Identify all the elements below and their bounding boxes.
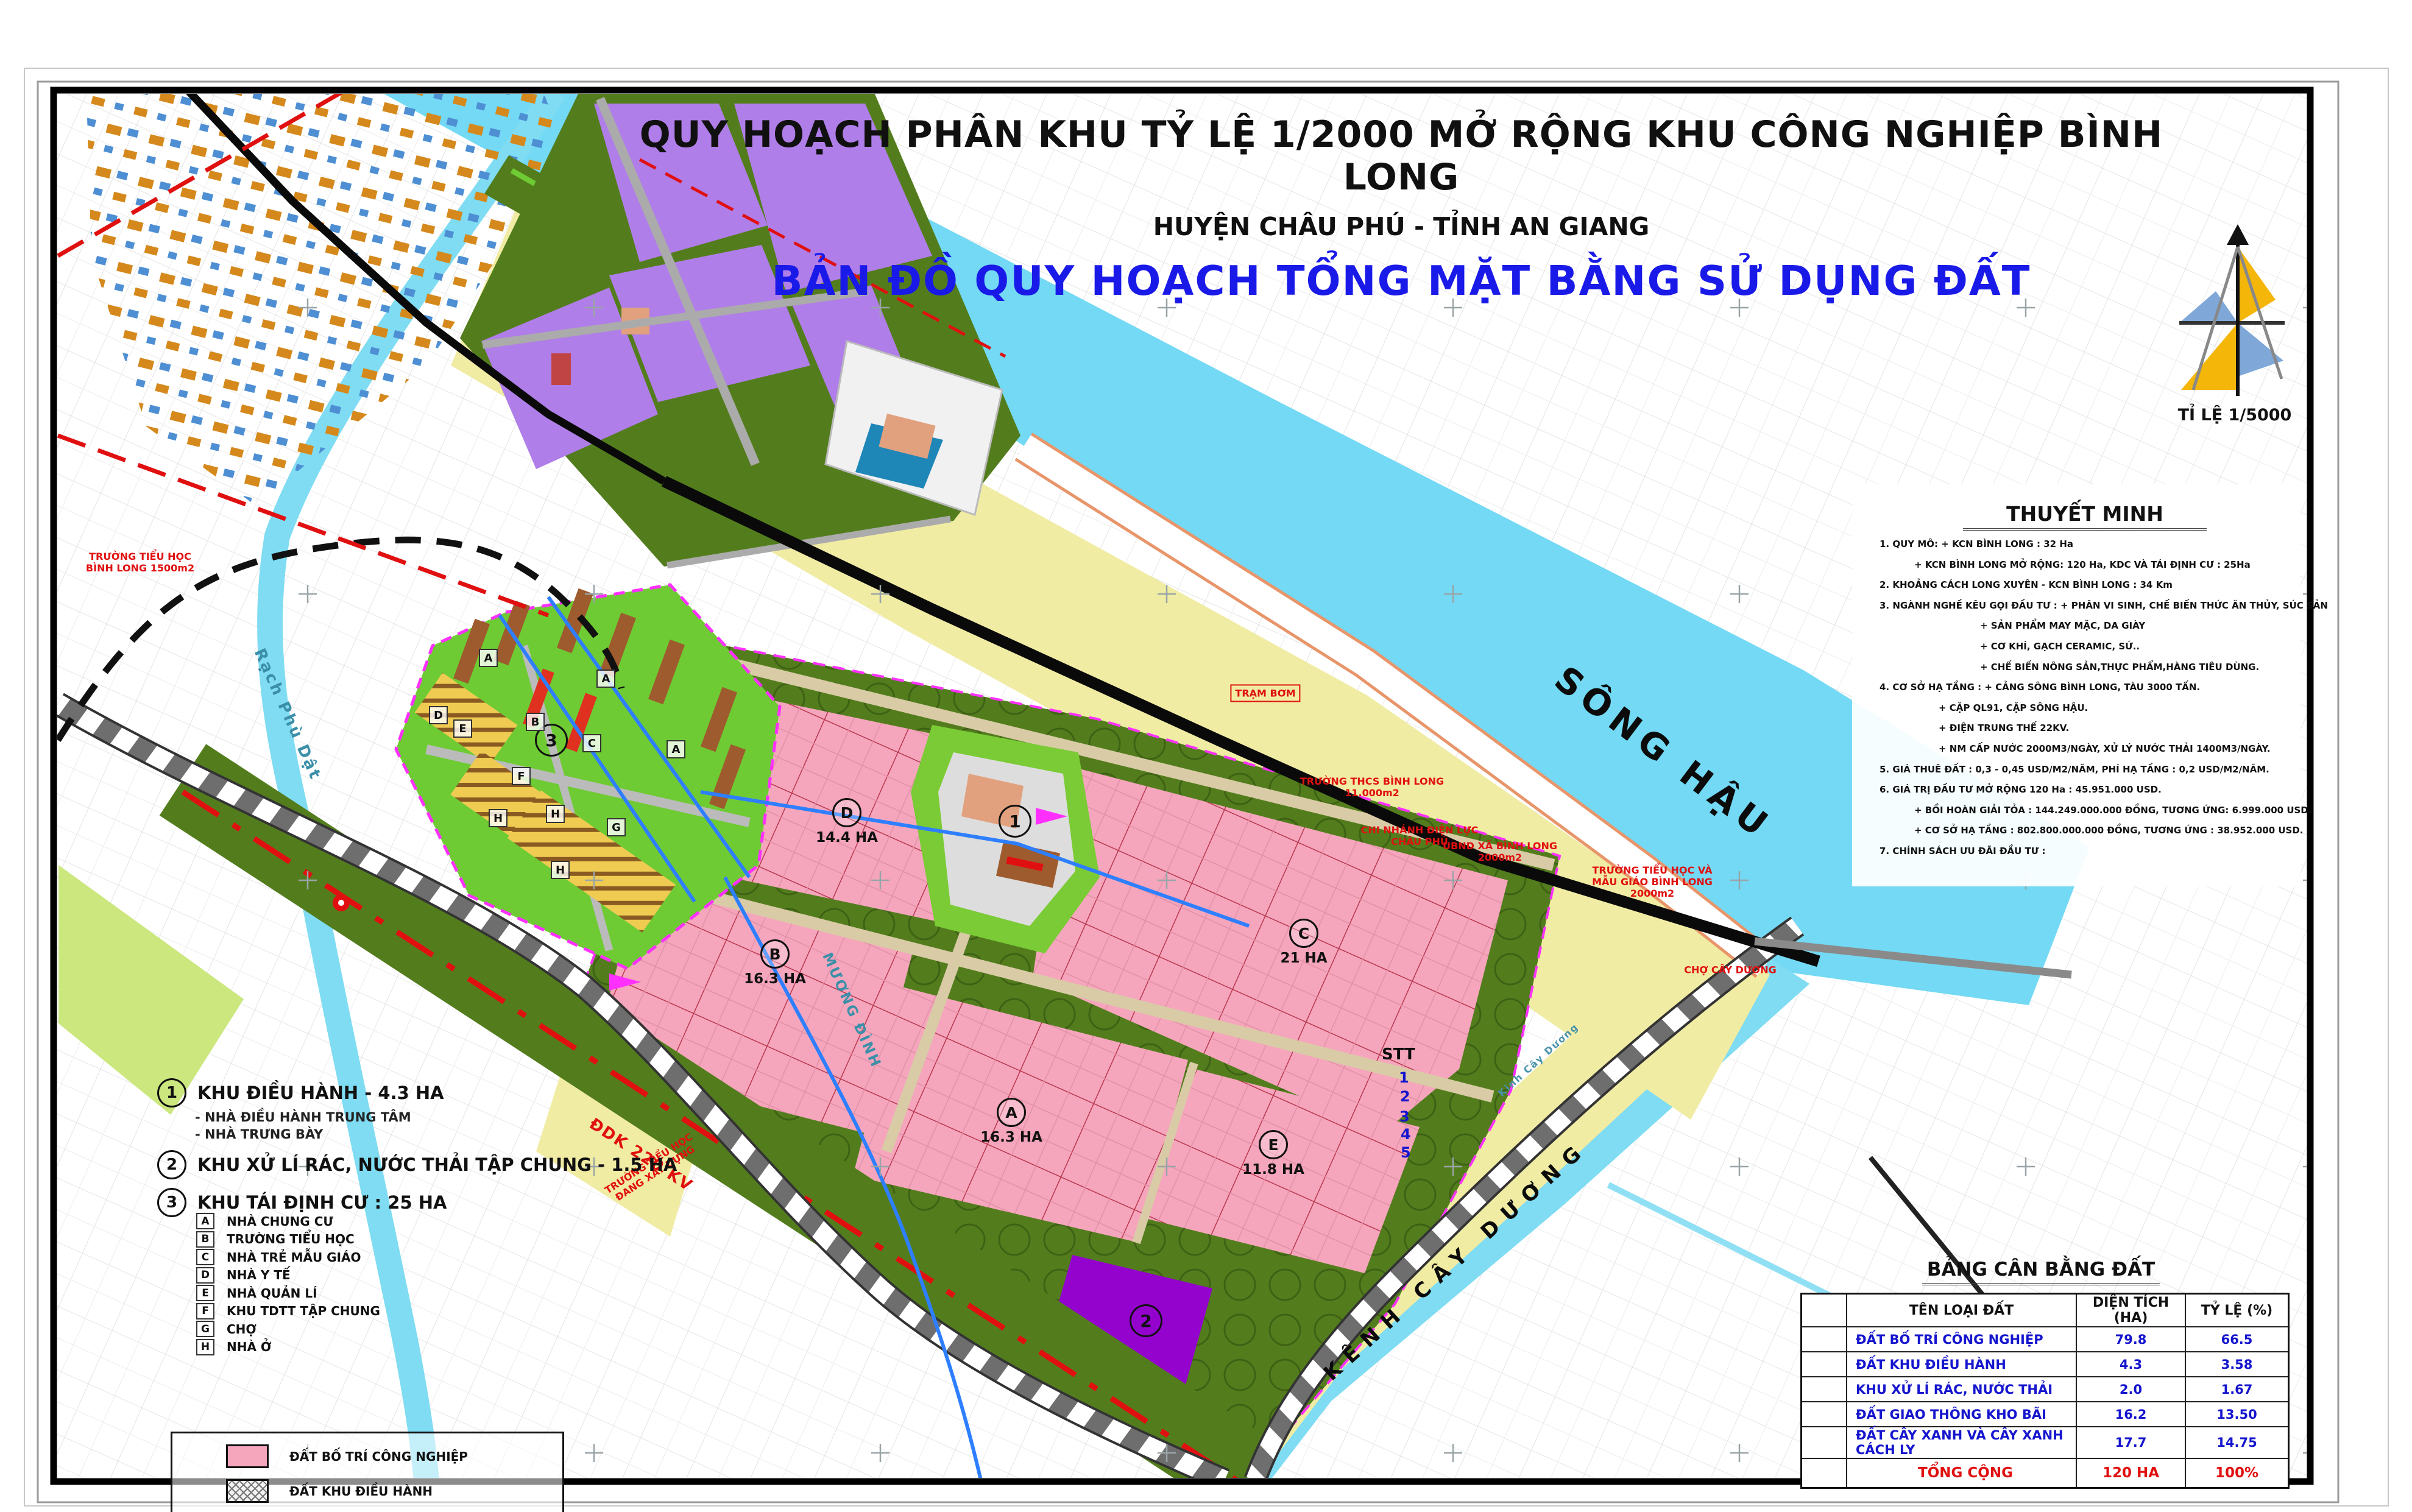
balance-table-body: ĐẤT BỐ TRÍ CÔNG NGHIỆP79.866.5ĐẤT KHU ĐI… bbox=[1802, 1327, 2289, 1458]
header-stt bbox=[1802, 1294, 1847, 1327]
main-title: QUY HOẠCH PHÂN KHU TỶ LỆ 1/2000 MỞ RỘNG … bbox=[579, 113, 2224, 199]
red-map-label: TRẠM BƠM bbox=[1230, 684, 1300, 702]
map-title: BẢN ĐỒ QUY HOẠCH TỔNG MẶT BẰNG SỬ DỤNG Đ… bbox=[579, 257, 2224, 305]
balance-table-title: BẢNG CÂN BẰNG ĐẤT bbox=[1840, 1259, 2242, 1281]
legend-letter-B: BTRƯỜNG TIỂU HỌC bbox=[196, 1231, 380, 1249]
table-row: ĐẤT BỐ TRÍ CÔNG NGHIỆP79.866.5 bbox=[1802, 1327, 2289, 1352]
note-line: 4. CƠ SỞ HẠ TẦNG : + CẢNG SÔNG BÌNH LONG… bbox=[1880, 682, 2200, 693]
header-name: TÊN LOẠI ĐẤT bbox=[1847, 1294, 2076, 1327]
note-line: + CƠ SỞ HẠ TẦNG : 802.800.000.000 ĐỒNG, … bbox=[1914, 825, 2304, 836]
table-total-row: TỔNG CỘNG 120 HA 100% bbox=[1802, 1458, 2289, 1488]
red-map-label: UBND XÃ BÌNH LONG2000m2 bbox=[1443, 840, 1557, 863]
stt-label: STT bbox=[1382, 1045, 1415, 1064]
stt-number: 5 bbox=[1401, 1144, 1411, 1161]
note-line: + CẶP QL91, CẶP SÔNG HẬU. bbox=[1939, 702, 2088, 713]
legend-swatch-pink: ĐẤT BỐ TRÍ CÔNG NGHIỆP bbox=[226, 1444, 562, 1468]
letter-marker-B: B bbox=[526, 713, 545, 731]
letter-marker-A: A bbox=[667, 740, 685, 758]
legend-numbered: 1KHU ĐIỀU HÀNH - 4.3 HA- NHÀ ĐIỀU HÀNH T… bbox=[157, 1078, 706, 1226]
legend-swatch-box: ĐẤT BỐ TRÍ CÔNG NGHIỆPĐẤT KHU ĐIỀU HÀNH bbox=[171, 1432, 564, 1512]
note-line: 5. GIÁ THUÊ ĐẤT : 0,3 - 0,45 USD/M2/NĂM,… bbox=[1880, 764, 2269, 775]
title-block: QUY HOẠCH PHÂN KHU TỶ LỆ 1/2000 MỞ RỘNG … bbox=[579, 113, 2224, 305]
legend-swatch-hatch: ĐẤT KHU ĐIỀU HÀNH bbox=[226, 1479, 562, 1503]
legend-letters: ANHÀ CHUNG CƯBTRƯỜNG TIỂU HỌCCNHÀ TRẺ MẪ… bbox=[196, 1212, 380, 1356]
letter-marker-F: F bbox=[512, 767, 531, 785]
stt-number: 4 bbox=[1401, 1126, 1411, 1143]
total-name: TỔNG CỘNG bbox=[1847, 1458, 2076, 1488]
notes-title: THUYẾT MINH bbox=[1963, 502, 2207, 531]
note-line: 6. GIÁ TRỊ ĐẦU TƯ MỞ RỘNG 120 Ha : 45.95… bbox=[1880, 784, 2162, 795]
letter-marker-A: A bbox=[596, 669, 615, 688]
zone-label-E: E11.8 HA bbox=[1231, 1130, 1316, 1178]
note-line: 7. CHÍNH SÁCH ƯU ĐÃI ĐẦU TƯ : bbox=[1880, 846, 2046, 857]
stt-number: 2 bbox=[1400, 1088, 1410, 1105]
circle-marker-1: 1 bbox=[999, 805, 1031, 838]
table-row: ĐẤT CÂY XANH VÀ CÂY XANH CÁCH LY17.714.7… bbox=[1802, 1427, 2289, 1458]
note-line: 2. KHOẢNG CÁCH LONG XUYÊN - KCN BÌNH LON… bbox=[1880, 579, 2173, 590]
legend-letter-H: HNHÀ Ở bbox=[196, 1338, 380, 1357]
zone-label-C: C21 HA bbox=[1261, 919, 1346, 966]
letter-marker-H: H bbox=[546, 805, 565, 823]
legend-item-1: 1KHU ĐIỀU HÀNH - 4.3 HA- NHÀ ĐIỀU HÀNH T… bbox=[157, 1078, 706, 1142]
red-map-label: TRƯỜNG TIỂU HỌC VÀMẪU GIÁO BÌNH LONG2000… bbox=[1592, 864, 1713, 900]
header-area: DIỆN TÍCH (HA) bbox=[2076, 1294, 2185, 1327]
note-line: + NM CẤP NƯỚC 2000M3/NGÀY, XỬ LÝ NƯỚC TH… bbox=[1939, 743, 2271, 754]
legend-letter-A: ANHÀ CHUNG CƯ bbox=[196, 1212, 380, 1231]
scale-label: TỈ LỆ 1/5000 bbox=[2162, 406, 2308, 425]
legend-letter-D: DNHÀ Y TẾ bbox=[196, 1266, 380, 1285]
letter-marker-D: D bbox=[429, 706, 448, 724]
legend-letter-F: FKHU TDTT TẬP CHUNG bbox=[196, 1302, 380, 1321]
note-line: 1. QUY MÔ: + KCN BÌNH LONG : 32 Ha bbox=[1880, 539, 2073, 549]
balance-table: TÊN LOẠI ĐẤT DIỆN TÍCH (HA) TỶ LỆ (%) ĐẤ… bbox=[1800, 1293, 2290, 1489]
legend-item-2: 2KHU XỬ LÍ RÁC, NƯỚC THẢI TẬP CHUNG - 1.… bbox=[157, 1150, 706, 1179]
note-line: + KCN BÌNH LONG MỞ RỘNG: 120 Ha, KDC VÀ … bbox=[1914, 559, 2251, 570]
note-line: + BỒI HOÀN GIẢI TỎA : 144.249.000.000 ĐỒ… bbox=[1914, 805, 2311, 816]
note-line: + SẢN PHẨM MAY MẶC, DA GIÀY bbox=[1980, 620, 2145, 631]
table-row: ĐẤT GIAO THÔNG KHO BÃI16.213.50 bbox=[1802, 1402, 2289, 1427]
note-line: 3. NGÀNH NGHỀ KÊU GỌI ĐẦU TƯ : + PHÂN VI… bbox=[1880, 600, 2328, 611]
note-line: + CƠ KHÍ, GẠCH CERAMIC, SỨ.. bbox=[1980, 641, 2140, 652]
letter-marker-H: H bbox=[551, 861, 570, 879]
table-row: ĐẤT KHU ĐIỀU HÀNH4.33.58 bbox=[1802, 1352, 2289, 1377]
stt-number: 3 bbox=[1399, 1108, 1410, 1125]
letter-marker-A: A bbox=[479, 649, 498, 667]
total-area: 120 HA bbox=[2076, 1458, 2185, 1488]
sub-title: HUYỆN CHÂU PHÚ - TỈNH AN GIANG bbox=[579, 212, 2224, 241]
table-row: KHU XỬ LÍ RÁC, NƯỚC THẢI2.01.67 bbox=[1802, 1377, 2289, 1402]
red-map-label: TRƯỜNG THCS BÌNH LONG11.000m2 bbox=[1300, 775, 1444, 799]
red-map-label: CHỢ CÂY DƯƠNG bbox=[1684, 964, 1777, 975]
zone-label-D: D14.4 HA bbox=[804, 798, 889, 846]
letter-marker-H: H bbox=[489, 809, 508, 827]
legend-letter-G: GCHỢ bbox=[196, 1320, 380, 1338]
note-line: + CHẾ BIẾN NÔNG SẢN,THỰC PHẨM,HÀNG TIÊU … bbox=[1980, 662, 2259, 673]
letter-marker-G: G bbox=[607, 818, 626, 836]
zone-label-B: B16.3 HA bbox=[732, 939, 818, 987]
legend-letter-C: CNHÀ TRẺ MẪU GIÁO bbox=[196, 1248, 380, 1266]
red-map-label: TRƯỜNG TIỂU HỌCBÌNH LONG 1500m2 bbox=[86, 551, 194, 574]
letter-marker-C: C bbox=[582, 734, 601, 752]
plan-sheet: QUY HOẠCH PHÂN KHU TỶ LỆ 1/2000 MỞ RỘNG … bbox=[0, 0, 2412, 1512]
legend-letter-E: ENHÀ QUẢN LÍ bbox=[196, 1284, 380, 1302]
stt-number: 1 bbox=[1399, 1069, 1409, 1086]
zone-label-A: A16.3 HA bbox=[969, 1098, 1054, 1145]
header-pct: TỶ LỆ (%) bbox=[2185, 1294, 2289, 1327]
note-line: + ĐIỆN TRUNG THẾ 22KV. bbox=[1939, 722, 2069, 733]
circle-marker-2: 2 bbox=[1130, 1304, 1162, 1337]
total-pct: 100% bbox=[2185, 1458, 2289, 1488]
letter-marker-E: E bbox=[453, 719, 472, 738]
